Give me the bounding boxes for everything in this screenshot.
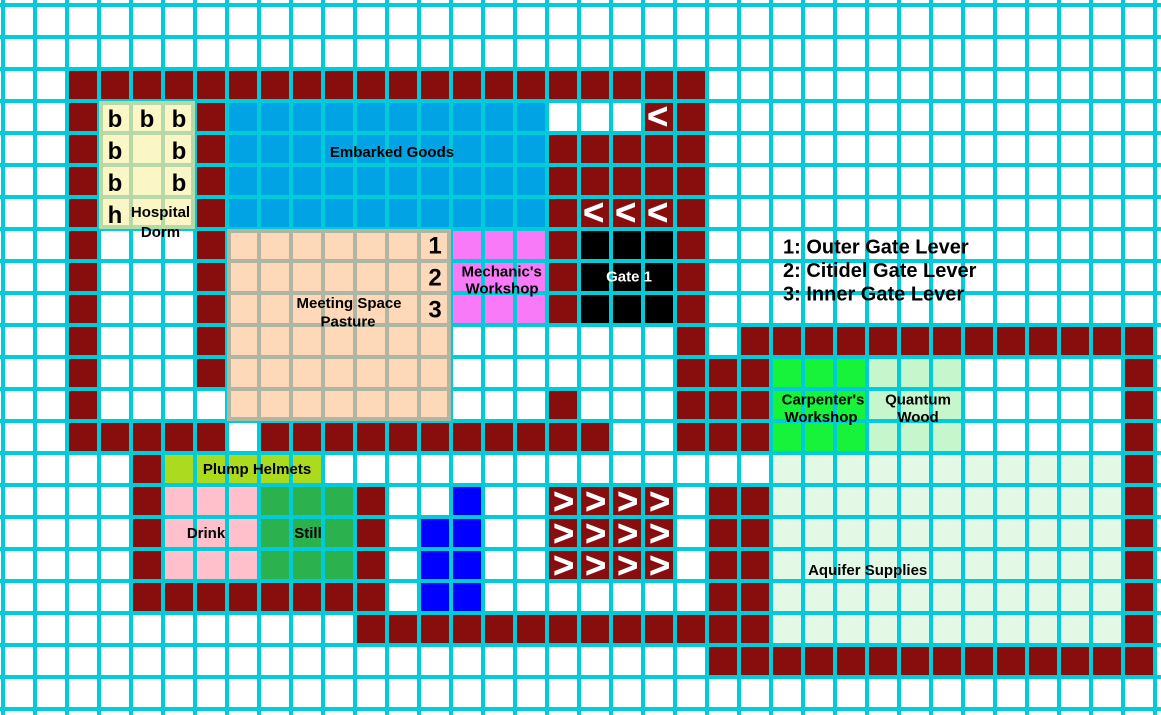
svg-text:<: < bbox=[647, 95, 668, 136]
svg-text:>: > bbox=[585, 545, 606, 586]
svg-text:b: b bbox=[108, 138, 123, 165]
svg-text:1: Outer Gate Lever: 1: Outer Gate Lever bbox=[783, 236, 969, 258]
svg-text:Meeting Space: Meeting Space bbox=[296, 295, 401, 312]
svg-text:Still: Still bbox=[294, 525, 322, 542]
svg-text:b: b bbox=[172, 138, 187, 165]
svg-text:Hospital: Hospital bbox=[131, 204, 190, 221]
svg-text:<: < bbox=[647, 191, 668, 232]
svg-text:<: < bbox=[615, 191, 636, 232]
svg-text:b: b bbox=[108, 170, 123, 197]
svg-text:2: Citidel Gate Lever: 2: Citidel Gate Lever bbox=[783, 260, 977, 282]
svg-text:Drink: Drink bbox=[187, 525, 226, 542]
svg-text:b: b bbox=[172, 106, 187, 133]
svg-text:Carpenter's: Carpenter's bbox=[782, 392, 865, 409]
svg-text:>: > bbox=[617, 545, 638, 586]
svg-text:Mechanic's: Mechanic's bbox=[462, 263, 542, 280]
svg-text:<: < bbox=[583, 191, 604, 232]
svg-text:3: 3 bbox=[428, 297, 441, 324]
svg-text:>: > bbox=[553, 545, 574, 586]
svg-text:3: Inner Gate Lever: 3: Inner Gate Lever bbox=[783, 283, 964, 305]
svg-text:Gate 1: Gate 1 bbox=[606, 269, 652, 286]
svg-text:b: b bbox=[172, 170, 187, 197]
svg-text:h: h bbox=[108, 202, 123, 229]
svg-text:Wood: Wood bbox=[897, 409, 938, 426]
svg-text:>: > bbox=[649, 545, 670, 586]
svg-text:1: 1 bbox=[428, 233, 441, 260]
svg-text:b: b bbox=[108, 106, 123, 133]
svg-text:Workshop: Workshop bbox=[784, 409, 857, 426]
svg-text:Quantum: Quantum bbox=[885, 392, 951, 409]
svg-text:b: b bbox=[140, 106, 155, 133]
svg-text:Aquifer Supplies: Aquifer Supplies bbox=[808, 562, 927, 579]
svg-text:Plump Helmets: Plump Helmets bbox=[203, 461, 311, 478]
svg-text:Pasture: Pasture bbox=[320, 314, 375, 331]
svg-text:Embarked Goods: Embarked Goods bbox=[330, 144, 454, 161]
svg-text:2: 2 bbox=[428, 265, 441, 292]
svg-text:Workshop: Workshop bbox=[465, 280, 538, 297]
svg-text:Dorm: Dorm bbox=[141, 224, 180, 241]
